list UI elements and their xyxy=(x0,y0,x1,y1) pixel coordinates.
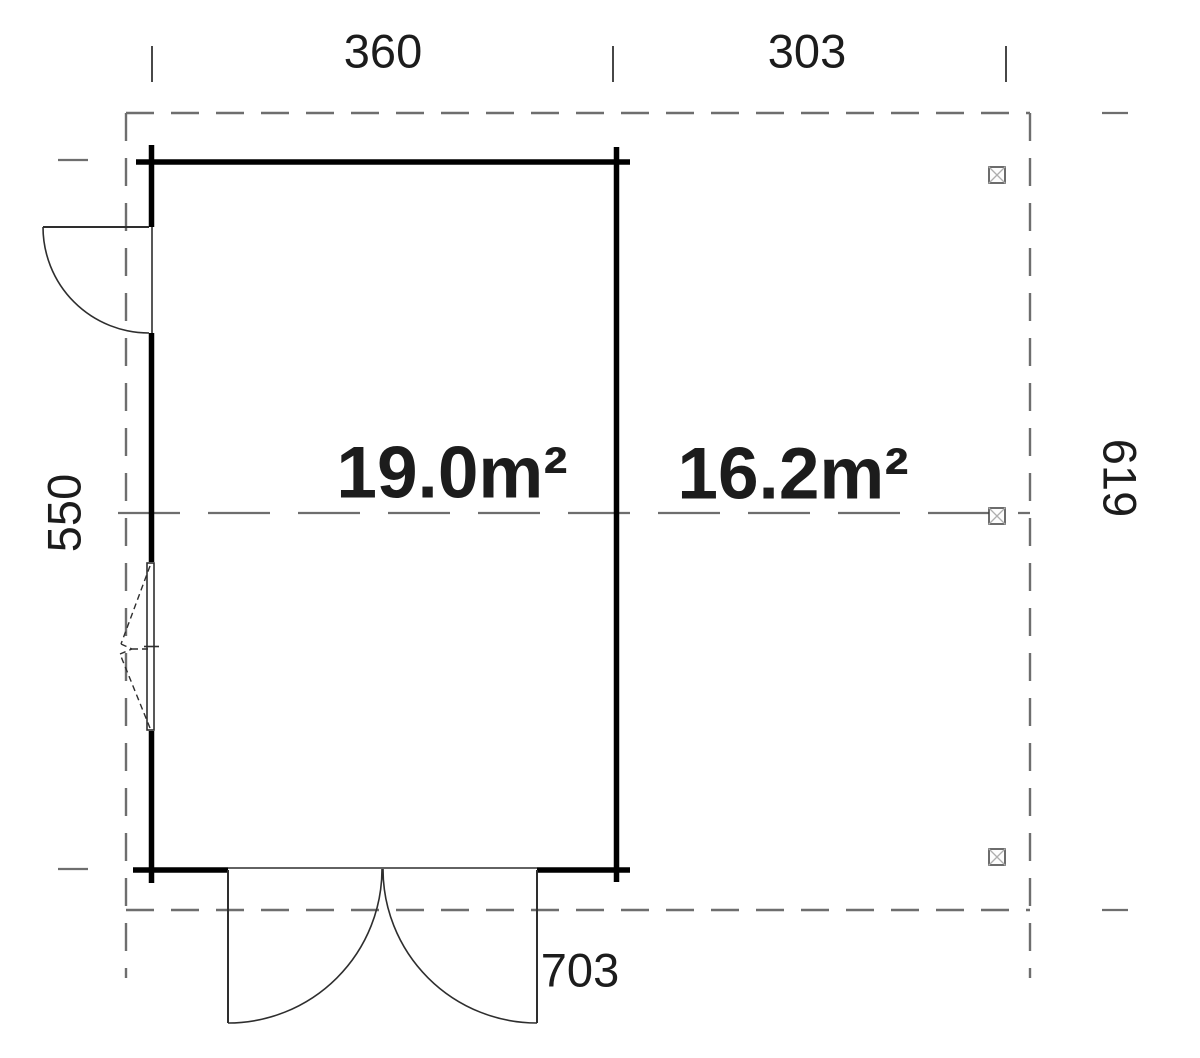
area-label-main-room: 19.0m² xyxy=(336,437,567,510)
dimension-label-width-total: 703 xyxy=(541,947,619,994)
double-door-symbol xyxy=(228,868,537,1023)
double-door-left-arc xyxy=(228,869,382,1023)
dimension-label-height-right: 619 xyxy=(1097,439,1144,517)
post-symbols xyxy=(989,167,1005,865)
floor-plan: 360 303 550 619 703 19.0m² 16.2m² xyxy=(0,0,1200,1058)
dimension-ticks xyxy=(152,46,1006,82)
double-door-right-arc xyxy=(383,869,537,1023)
dimension-label-height-left: 550 xyxy=(41,474,88,552)
post-symbol-middle xyxy=(989,508,1005,524)
dimension-label-width-side: 303 xyxy=(768,28,846,75)
entry-door-symbol xyxy=(43,227,152,333)
post-symbol-top xyxy=(989,167,1005,183)
dimension-extension-lines xyxy=(58,113,1128,910)
dimension-label-width-main: 360 xyxy=(344,28,422,75)
outer-boundary-dashed xyxy=(126,113,1030,978)
room-walls xyxy=(133,145,630,883)
post-symbol-bottom xyxy=(989,849,1005,865)
door-swing-arc xyxy=(43,227,149,333)
floor-plan-canvas xyxy=(0,0,1200,1058)
area-label-side-area: 16.2m² xyxy=(677,438,908,511)
